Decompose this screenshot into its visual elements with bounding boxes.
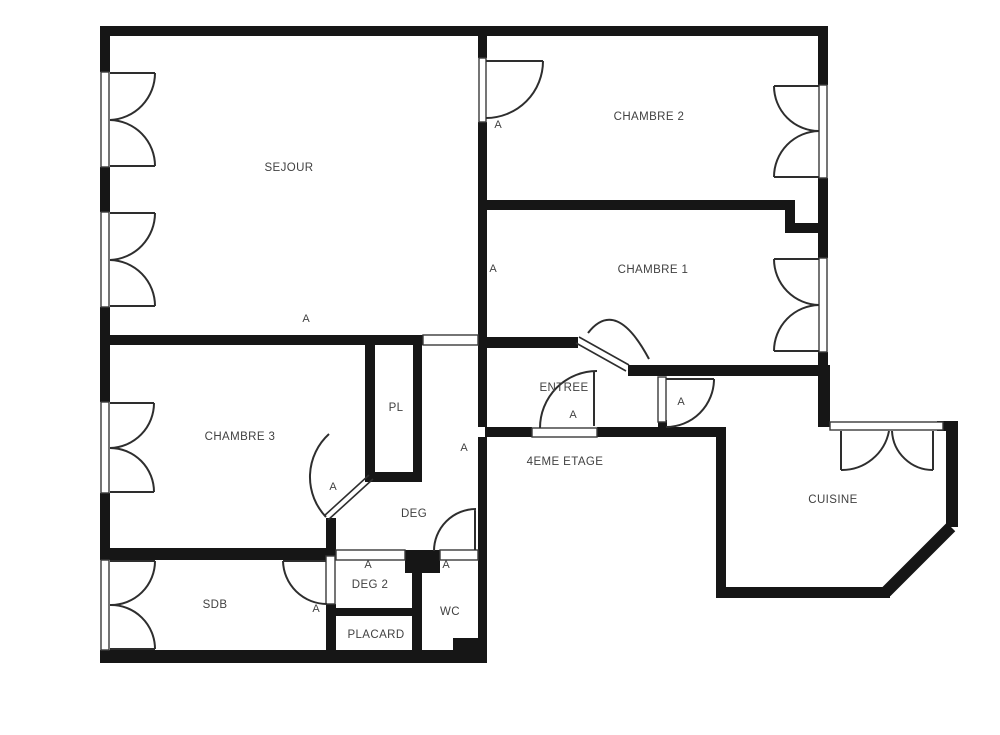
wall-chambre1-bottom-west: [478, 337, 578, 348]
door-sdb: [283, 556, 335, 604]
opening-sejour-corridor: [423, 335, 478, 345]
wall-chambre3-east: [365, 335, 375, 477]
windows: [101, 72, 943, 650]
floor-plan-drawing: SEJOUR CHAMBRE 2 CHAMBRE 1 CHAMBRE 3 PL …: [0, 0, 1000, 735]
annotation-corridor: A: [460, 442, 468, 454]
room-label-pl: PL: [389, 402, 404, 414]
room-label-placard: PLACARD: [347, 629, 404, 641]
room-label-entree: ENTREE: [539, 382, 588, 394]
doors: [283, 58, 714, 604]
door-chambre2: [479, 58, 543, 122]
room-label-chambre2: CHAMBRE 2: [614, 111, 685, 123]
window-chambre3: [101, 402, 154, 493]
floor-plan: SEJOUR CHAMBRE 2 CHAMBRE 1 CHAMBRE 3 PL …: [0, 0, 1000, 735]
room-label-deg: DEG: [401, 508, 427, 520]
wall-left: [100, 307, 110, 402]
wall-right: [818, 26, 828, 85]
wall-top: [100, 26, 828, 36]
door-entree: [532, 371, 597, 437]
door-kitchen: [658, 377, 714, 427]
annotation-kitchen: A: [677, 396, 685, 408]
wall-bottom: [100, 650, 487, 663]
wall-spine: [478, 348, 487, 427]
door-annotations: A A A A A A A A A A: [302, 119, 685, 615]
room-label-wc: WC: [440, 606, 460, 618]
window-cuisine: [830, 422, 943, 470]
wall-pl-right: [413, 345, 422, 482]
annotation-chambre3: A: [329, 481, 337, 493]
wall-hall-bottom: [485, 427, 532, 437]
wall-spine: [478, 26, 487, 58]
wall-spine: [478, 437, 487, 653]
walls: [100, 26, 958, 663]
window-sejour-1: [101, 72, 155, 167]
wall-pl-bottom: [365, 472, 422, 482]
window-sdb: [101, 560, 155, 650]
window-sejour-2: [101, 212, 155, 307]
wall-wc-chunk: [405, 550, 440, 573]
annotation-sejour: A: [302, 313, 310, 325]
wall-chambre3-bottom: [100, 548, 326, 560]
annotation-chambre2: A: [494, 119, 502, 131]
wall-sdb-east: [326, 604, 336, 658]
annotation-sdb: A: [312, 603, 320, 615]
window-chambre1: [774, 258, 827, 352]
room-label-sejour: SEJOUR: [264, 162, 313, 174]
room-label-deg2: DEG 2: [352, 579, 389, 591]
annotation-deg2: A: [364, 559, 372, 571]
wall-kitchen-right: [946, 421, 958, 527]
wall-left: [100, 167, 110, 212]
wall-wc-west: [412, 573, 422, 650]
wall-kitchen-diagonal: [886, 527, 951, 592]
window-chambre2: [774, 85, 827, 178]
room-label-chambre3: CHAMBRE 3: [205, 431, 276, 443]
wall-right-step: [818, 373, 830, 427]
wall-left: [100, 26, 110, 72]
wall-wc-duct: [453, 638, 487, 652]
wall-right: [818, 178, 828, 258]
wall-hall-bottom: [597, 427, 726, 437]
room-label-sdb: SDB: [203, 599, 228, 611]
door-chambre1: [576, 320, 649, 371]
door-chambre3: [310, 434, 373, 520]
wall-chambre2-bottom: [478, 200, 793, 210]
wall-notch-horiz: [785, 223, 828, 233]
wall-kitchen-bottom: [716, 587, 890, 598]
annotation-wc: A: [442, 559, 450, 571]
wall-sdb-east: [326, 518, 336, 556]
wall-spine: [478, 122, 487, 337]
room-label-cuisine: CUISINE: [808, 494, 857, 506]
door-wc: [434, 509, 478, 560]
wall-chambre1-bottom-east: [628, 365, 830, 376]
wall-kitchen-left: [716, 427, 726, 597]
wall-deg2-placard: [336, 608, 412, 616]
annotation-chambre1: A: [489, 263, 497, 275]
annotation-entree: A: [569, 409, 577, 421]
floor-label: 4EME ETAGE: [527, 456, 604, 468]
room-label-chambre1: CHAMBRE 1: [618, 264, 689, 276]
